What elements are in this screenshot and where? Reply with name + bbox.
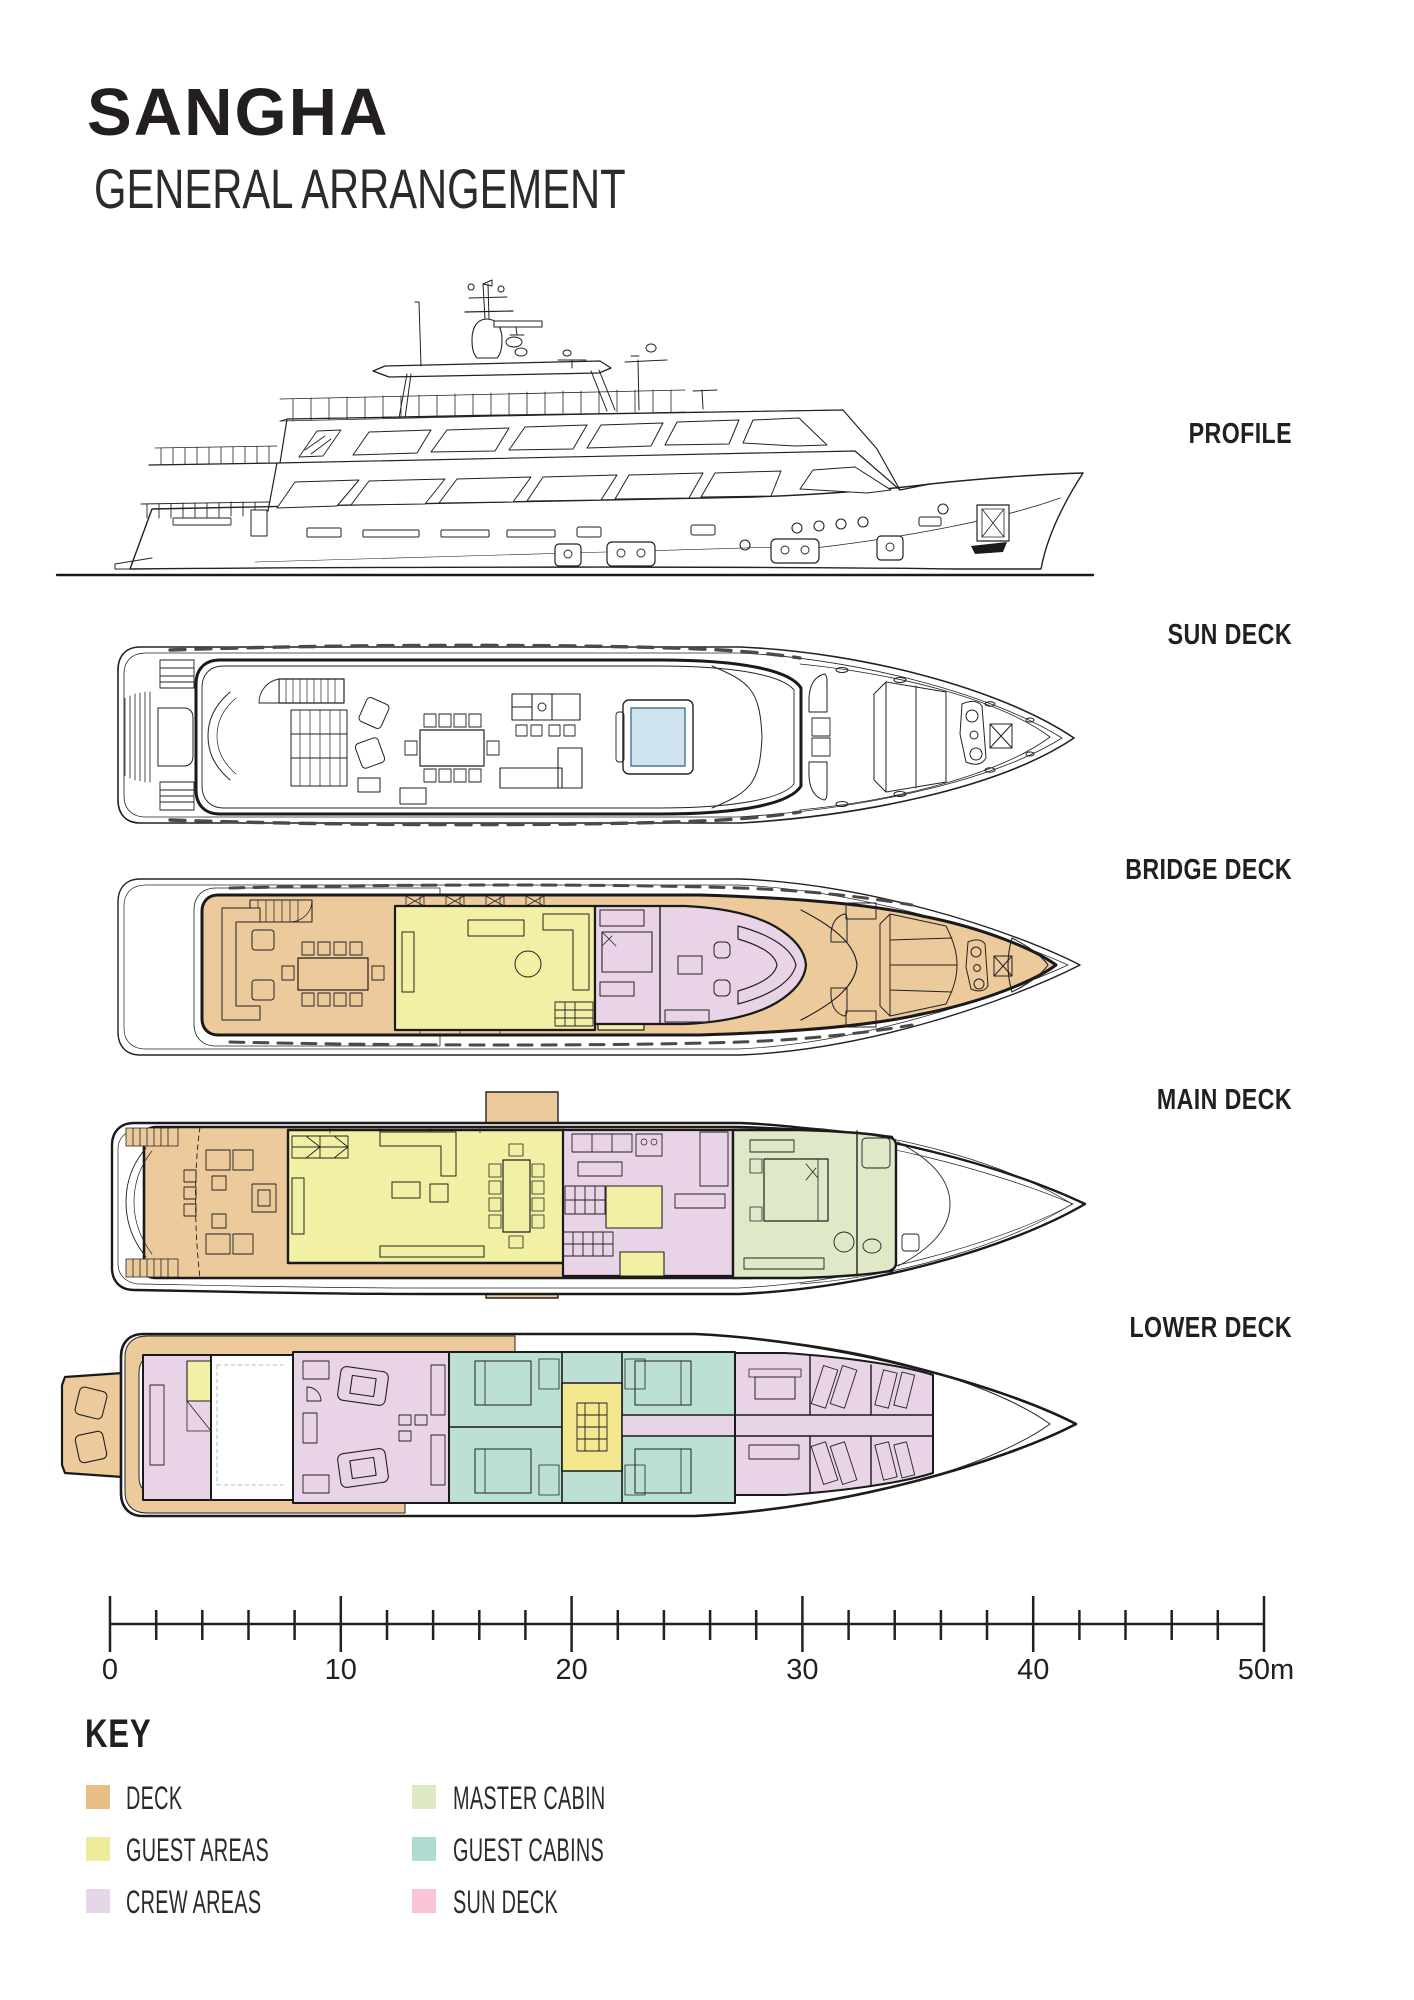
svg-text:50m: 50m [1238, 1654, 1294, 1686]
svg-text:20: 20 [555, 1654, 587, 1686]
svg-text:30: 30 [786, 1654, 818, 1686]
svg-text:0: 0 [102, 1654, 118, 1686]
svg-text:40: 40 [1017, 1654, 1049, 1686]
svg-text:10: 10 [325, 1654, 357, 1686]
